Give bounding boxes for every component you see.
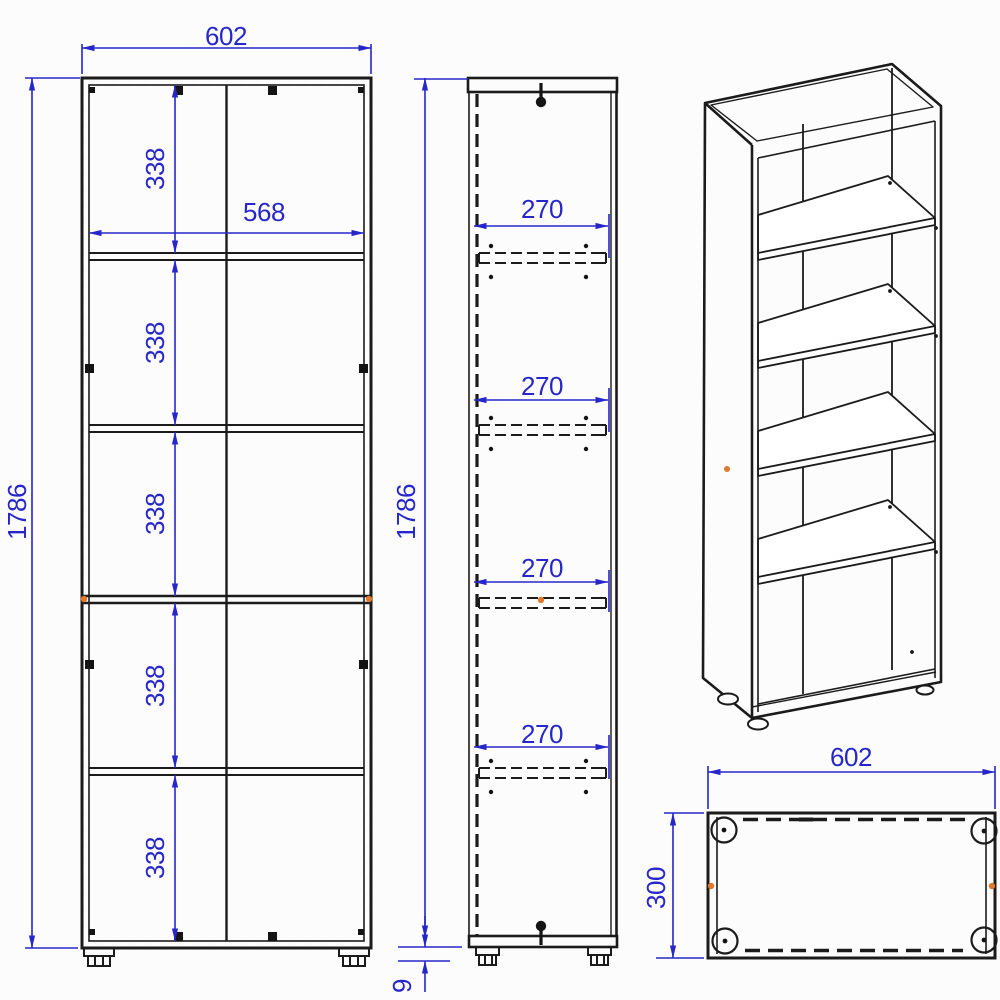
furniture-technical-drawing: 602 568 1786 338 338 338 338 338 1786 27…: [0, 0, 1000, 1000]
dowel-mark: [724, 466, 730, 472]
front-section-dim-label: 338: [142, 322, 168, 364]
side-depth-dim-label: 270: [521, 721, 563, 747]
top-width-dim-label: 602: [830, 744, 872, 770]
front-inner-width-dim-label: 568: [243, 199, 285, 225]
iso-shelves: [758, 176, 935, 584]
top-view-drawing: [708, 813, 997, 958]
front-view-drawing: [81, 78, 372, 966]
cam-screw-icon-top: [536, 83, 546, 107]
dowel-mark: [538, 597, 544, 603]
iso-feet: [718, 686, 934, 730]
front-section-dim-label: 338: [142, 493, 168, 535]
dowel-marks: [708, 883, 995, 889]
front-section-dim-label: 338: [142, 148, 168, 190]
back-panel-hidden-lines: [743, 820, 965, 951]
front-height-dim-label: 1786: [4, 484, 30, 540]
front-section-dim-label: 338: [142, 837, 168, 879]
side-feet: [476, 947, 611, 965]
hidden-shelf-lines: [479, 253, 606, 778]
drill-hole-dots: [489, 244, 588, 794]
front-width-dim-label: 602: [205, 23, 247, 49]
side-depth-dim-label: 270: [521, 555, 563, 581]
side-depth-dim-label: 270: [521, 373, 563, 399]
side-view-dimensions: [398, 78, 609, 992]
side-height-dim-label: 1786: [393, 484, 419, 540]
front-section-dim-label: 338: [142, 665, 168, 707]
top-depth-dim-label: 300: [643, 867, 669, 909]
isometric-view-drawing: [703, 64, 941, 730]
side-base-dim-label: 9: [389, 979, 415, 993]
foot-circles: [712, 818, 997, 954]
front-view-dimensions: [25, 44, 371, 948]
cam-screw-icon-bottom: [536, 921, 546, 945]
front-feet: [84, 948, 369, 966]
side-depth-dim-label: 270: [521, 196, 563, 222]
